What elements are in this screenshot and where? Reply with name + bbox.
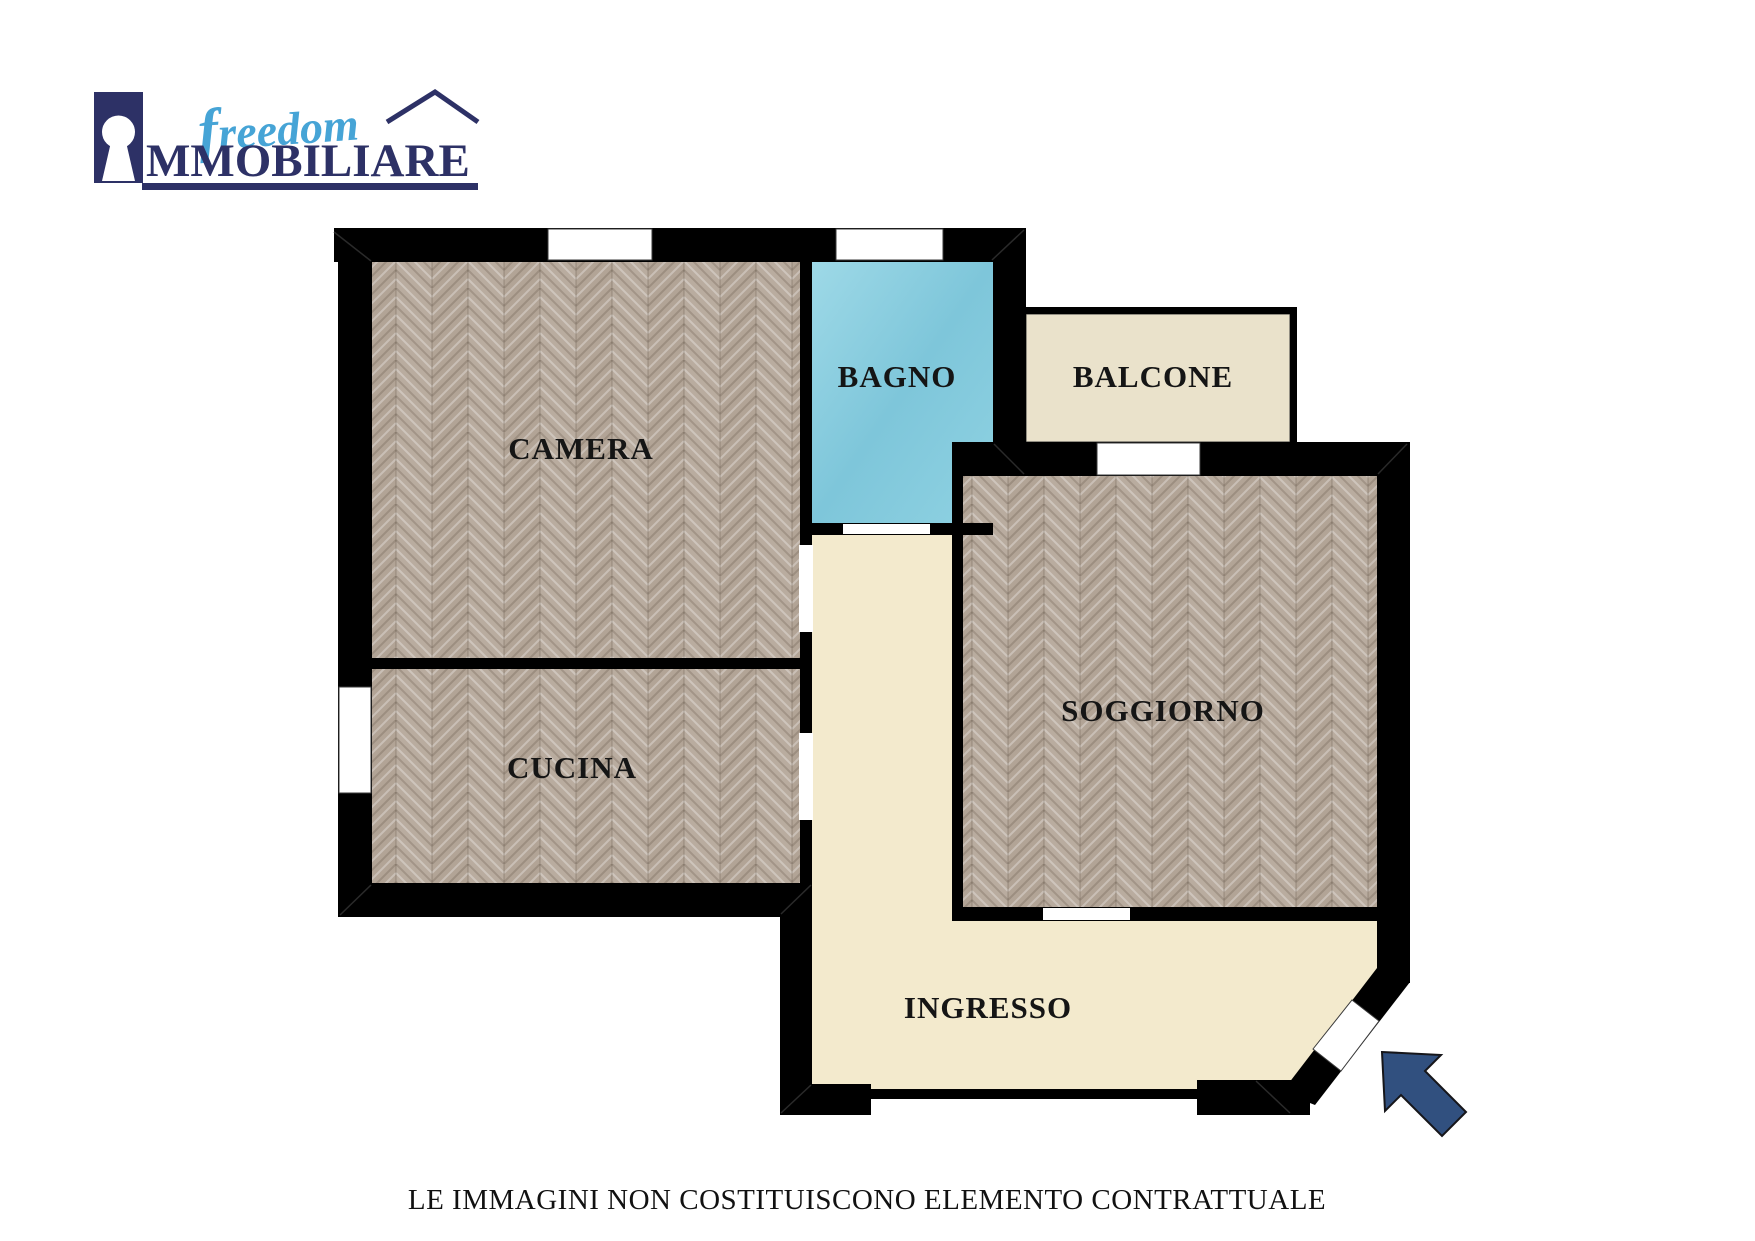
window-camera	[548, 229, 652, 260]
room-label-camera: CAMERA	[508, 431, 654, 467]
room-label-bagno: BAGNO	[838, 359, 957, 395]
room-label-balcone: BALCONE	[1073, 359, 1233, 395]
wall-bottom-block-left	[811, 1084, 871, 1115]
logo-caps-word: MMOBILIARE	[146, 139, 470, 184]
entrance-arrow-icon	[1382, 1052, 1466, 1136]
wall-left	[338, 228, 372, 917]
wall-balcone-top	[1026, 307, 1297, 314]
wall-balcone-right	[1290, 307, 1297, 442]
window-bagno	[836, 229, 943, 260]
wall-camera-cucina	[338, 658, 812, 669]
room-label-cucina: CUCINA	[507, 750, 637, 786]
wall-soggiorno-bottom	[952, 907, 1377, 921]
wall-cucina-bottom	[338, 883, 812, 917]
window-cucina	[339, 687, 371, 793]
room-label-ingresso: INGRESSO	[904, 990, 1072, 1026]
door-camera	[799, 545, 813, 632]
wall-soggiorno-right	[1377, 442, 1410, 983]
footer-disclaimer: LE IMMAGINI NON COSTITUISCONO ELEMENTO C…	[408, 1184, 1326, 1217]
door-bagno	[843, 524, 930, 534]
wall-ingresso-left	[780, 883, 812, 1115]
wall-soggiorno-left	[952, 442, 963, 921]
door-balcone	[1097, 443, 1200, 475]
door-soggiorno	[1043, 908, 1130, 920]
wall-ingresso-bottom	[870, 1089, 1198, 1099]
door-cucina	[799, 733, 813, 820]
room-label-soggiorno: SOGGIORNO	[1061, 693, 1265, 729]
floorplan-page: freedom MMOBILIARE CAMERA CUCINA BAGNO B…	[0, 0, 1755, 1241]
house-roof-icon	[387, 92, 478, 122]
wall-bagno-right	[993, 228, 1026, 476]
